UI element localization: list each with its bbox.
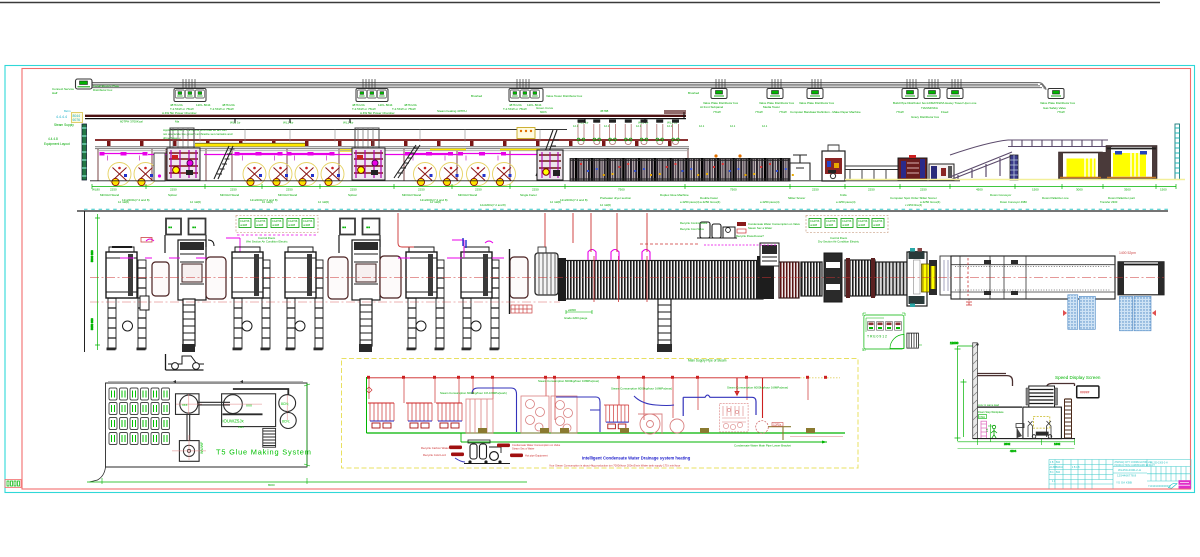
svg-text:Gravy Distributor box: Gravy Distributor box: [911, 115, 940, 119]
svg-text:2250: 2250: [230, 188, 237, 192]
svg-text:12.1: 12.1: [762, 124, 768, 128]
svg-text:77kW: 77kW: [779, 110, 787, 114]
svg-text:Steam Consumption 6000kg/hour: Steam Consumption 6000kg/hour 0.8-0.6MPa…: [440, 391, 507, 395]
svg-text:2250: 2250: [475, 188, 482, 192]
svg-text:8CN;: 8CN;: [282, 420, 290, 424]
svg-text:4204: 4204: [1010, 449, 1017, 453]
svg-text:Steam Sec a Water: Steam Sec a Water: [748, 226, 772, 230]
svg-text:77kW: 77kW: [755, 110, 763, 114]
svg-text:1254466778.8: 1254466778.8: [1117, 474, 1137, 478]
svg-text:77kW: 77kW: [713, 110, 721, 114]
svg-text:ZHANGQ CITY CORRUGATOR LIN: ZHANGQ CITY CORRUGATOR LIN: [1115, 461, 1152, 464]
svg-text:Condensate Water Consumption o: Condensate Water Consumption on Valve: [512, 443, 561, 447]
svg-text:4 B 4 B: 4 B 4 B: [1072, 467, 1080, 469]
svg-text:Recycle Carbon Water: Recycle Carbon Water: [421, 446, 449, 450]
svg-text:WL1 1tr: WL1 1tr: [343, 121, 354, 125]
svg-text:Steam Sec a Water: Steam Sec a Water: [512, 447, 535, 451]
svg-text:#####: #####: [1080, 391, 1090, 395]
svg-text:7101010000000017: 7101010000000017: [1148, 484, 1172, 488]
svg-text:60t/h: 60t/h: [540, 110, 547, 114]
svg-text:Knife: Knife: [840, 193, 847, 197]
svg-text:Splicer: Splicer: [348, 193, 357, 197]
svg-text:Recycle Cold Lord: Recycle Cold Lord: [423, 453, 446, 457]
svg-text:A 4W 5kr Power Chamber: A 4W 5kr Power Chamber: [162, 111, 197, 115]
svg-text:2250: 2250: [350, 188, 357, 192]
svg-text:YS GA KBB: YS GA KBB: [1116, 481, 1132, 485]
svg-text:Valve Tower Distributor box: Valve Tower Distributor box: [546, 94, 583, 98]
svg-text:Recycle Cost Valve: Recycle Cost Valve: [680, 227, 704, 231]
svg-text:12.1: 12.1: [730, 124, 736, 128]
svg-text:4500: 4500: [976, 188, 983, 192]
svg-text:12.1: 12.1: [699, 124, 705, 128]
svg-text:Steam heating 40TPH: Steam heating 40TPH: [437, 109, 467, 113]
svg-text:12000: 12000: [950, 341, 959, 345]
svg-text:Steam Consumption 6000kg/hour: Steam Consumption 6000kg/hour 0.8MPa(max…: [538, 379, 599, 383]
svg-text:4.4.4.4: 4.4.4.4: [56, 115, 67, 119]
svg-text:12.1: 12.1: [667, 124, 673, 128]
svg-text:8000: 8000: [268, 483, 275, 487]
svg-text:77kW: 77kW: [1057, 110, 1065, 114]
svg-text:xxx: xxx: [246, 403, 252, 408]
svg-text:5600 300: 5600 300: [90, 250, 94, 262]
svg-text:2250: 2250: [110, 188, 117, 192]
svg-text:Speed Display Screen: Speed Display Screen: [1055, 375, 1101, 380]
svg-text:12.1: 12.1: [636, 124, 642, 128]
svg-text:3500: 3500: [1124, 188, 1131, 192]
svg-text:Single Facer: Single Facer: [520, 193, 537, 197]
svg-text:60TPH 3700Kcal: 60TPH 3700Kcal: [120, 120, 143, 124]
svg-text:B44: B44: [1056, 462, 1061, 464]
svg-text:45788: 45788: [600, 109, 609, 113]
svg-text:Down Conveyor 4980: Down Conveyor 4980: [1000, 200, 1027, 204]
svg-text:2250: 2250: [812, 188, 819, 192]
svg-text:TIANSFNKA: TIANSFNKA: [921, 106, 938, 110]
svg-text:iOUWZ5Jx: iOUWZ5Jx: [223, 419, 245, 424]
svg-text:Grade 2200 gauge: Grade 2200 gauge: [564, 316, 588, 320]
svg-text:2250: 2250: [418, 188, 425, 192]
svg-text:Main Supply Pipe of Steam: Main Supply Pipe of Steam: [688, 359, 727, 363]
svg-text:Build Pipe Distributor box: Build Pipe Distributor box: [893, 101, 927, 105]
svg-text:WWWF: WWWF: [200, 441, 204, 454]
svg-text:12 roll(6): 12 roll(6): [550, 200, 561, 204]
svg-text:Duplex Glue Machine: Duplex Glue Machine: [660, 193, 689, 197]
svg-text:12 roll(6): 12 roll(6): [430, 200, 441, 204]
svg-text:12.1: 12.1: [604, 124, 610, 128]
svg-text:T-2.5KW or 75kW: T-2.5KW or 75kW: [210, 107, 234, 111]
svg-text:Your Steam Consumption is abou: Your Steam Consumption is about 4kg prod…: [549, 464, 680, 468]
svg-text:1602: 1602: [1054, 442, 1061, 446]
svg-text:a 4250 piece(4): a 4250 piece(4): [836, 200, 856, 204]
svg-text:7500: 7500: [730, 188, 737, 192]
svg-text:2250: 2250: [170, 188, 177, 192]
svg-text:Wet Section Air Condition Elec: Wet Section Air Condition Electric: [246, 240, 288, 244]
svg-text:x 2250 litre(4): x 2250 litre(4): [905, 203, 922, 207]
svg-text:Recycle Control Valve: Recycle Control Valve: [680, 221, 708, 225]
svg-text:Down Conveyor: Down Conveyor: [990, 193, 1011, 197]
svg-text:Ma: Ma: [175, 120, 179, 124]
svg-text:2250: 2250: [868, 188, 875, 192]
svg-text:Intelligent Condensate Water D: Intelligent Condensate Water Drainage sy…: [582, 456, 691, 461]
svg-text:1500: 1500: [1032, 188, 1039, 192]
svg-text:2250: 2250: [286, 188, 293, 192]
svg-text:Dry Section Air Condition Elec: Dry Section Air Condition Electric: [818, 240, 860, 244]
svg-text:Steam Consumption 6000kg/hour: Steam Consumption 6000kg/hour 0.8MPa(max…: [727, 386, 788, 390]
svg-text:2250: 2250: [920, 188, 927, 192]
svg-text:xWx: xWx: [238, 425, 244, 429]
svg-text:Mill Roll Stand: Mill Roll Stand: [458, 193, 478, 197]
svg-text:■■: ■■: [192, 226, 196, 230]
svg-text:⌀1800: ⌀1800: [568, 308, 576, 312]
svg-text:5050 600: 5050 600: [90, 318, 94, 330]
svg-text:xxx: xxx: [182, 403, 188, 407]
svg-text:4.4.4.8: 4.4.4.8: [48, 137, 58, 141]
svg-text:Mill Roll Stand: Mill Roll Stand: [278, 193, 298, 197]
svg-text:Brushed: Brushed: [471, 94, 483, 98]
svg-text:Recycle Powerhouse?: Recycle Powerhouse?: [736, 234, 764, 238]
svg-text:12x2200x(7.2 and 8): 12x2200x(7.2 and 8): [480, 203, 506, 207]
svg-text:12x2200x(7.2 and 8): 12x2200x(7.2 and 8): [560, 198, 588, 202]
svg-text:T-2.5KW or 75kW: T-2.5KW or 75kW: [392, 107, 416, 111]
svg-text:Fixed: Fixed: [941, 110, 949, 114]
svg-text:■■: ■■: [366, 226, 370, 230]
svg-text:Condensate Water Main Pipe Low: Condensate Water Main Pipe Lower Bracket: [734, 444, 791, 448]
svg-text:Transfer 2300: Transfer 2300: [1100, 200, 1118, 204]
svg-text:2602: 2602: [1004, 442, 1011, 446]
svg-text:Hot pipe Equipment: Hot pipe Equipment: [525, 454, 548, 458]
svg-text:T5 Glue Making System: T5 Glue Making System: [216, 448, 312, 457]
svg-text:a 4250 piece(4): a 4250 piece(4): [680, 200, 700, 204]
svg-text:8CN;: 8CN;: [281, 402, 289, 406]
svg-text:8stm: 8stm: [64, 109, 71, 113]
svg-text:WL80: WL80: [92, 188, 100, 192]
svg-text:WL1 1tr: WL1 1tr: [230, 121, 241, 125]
svg-text:WL250-2300-2-H: WL250-2300-2-H: [1150, 463, 1168, 465]
svg-text:At front Subpanel: At front Subpanel: [700, 105, 724, 109]
svg-text:4 B: 4 B: [1050, 462, 1054, 464]
svg-text:T-2.5KW or 75kW: T-2.5KW or 75kW: [503, 107, 527, 111]
svg-text:Mill Roll Stand: Mill Roll Stand: [100, 193, 120, 197]
svg-text:Valve Plate Distributor box: Valve Plate Distributor box: [799, 101, 835, 105]
svg-text:1500: 1500: [1160, 188, 1167, 192]
svg-text:Distributor box: Distributor box: [93, 88, 113, 92]
svg-text:A 4W 5kr Power Chamber: A 4W 5kr Power Chamber: [360, 111, 395, 115]
svg-text:Steam Supply: Steam Supply: [54, 123, 74, 127]
svg-text:12 roll(6): 12 roll(6): [262, 200, 273, 204]
svg-text:Media Tower: Media Tower: [763, 105, 780, 109]
svg-text:Mill Roll Stand: Mill Roll Stand: [220, 193, 240, 197]
svg-text:WL1 1tr: WL1 1tr: [283, 121, 294, 125]
svg-text:12 roll(6): 12 roll(6): [190, 200, 201, 204]
svg-text:7500: 7500: [618, 188, 625, 192]
svg-text:COPDs: COPDs: [773, 424, 782, 427]
svg-text:2250: 2250: [532, 188, 539, 192]
svg-text:1400 52pm: 1400 52pm: [1119, 251, 1136, 255]
svg-text:12 roll(6): 12 roll(6): [600, 203, 611, 207]
svg-text:Slitter Scorer: Slitter Scorer: [788, 196, 805, 200]
svg-text:WL250-2300-2-H: WL250-2300-2-H: [1118, 468, 1141, 472]
svg-text:Down Step Workplace: Down Step Workplace: [978, 410, 1004, 414]
svg-text:12 roll(6): 12 roll(6): [118, 200, 129, 204]
svg-text:12KL 8044: 12KL 8044: [378, 103, 393, 107]
svg-text:Computer Bandsaw Definition -: Computer Bandsaw Definition - Make Paper…: [790, 110, 861, 114]
svg-text:■■: ■■: [168, 226, 172, 230]
svg-text:12.1: 12.1: [573, 124, 579, 128]
svg-text:T R E 0 9 1 2: T R E 0 9 1 2: [867, 335, 887, 339]
svg-text:3000: 3000: [1076, 188, 1083, 192]
svg-text:LDMATFWIA Heavy Travel Upon on: LDMATFWIA Heavy Travel Upon one: [927, 101, 977, 105]
svg-text:Splicer: Splicer: [168, 193, 177, 197]
svg-text:■■: ■■: [342, 226, 346, 230]
svg-text:6076: 6076: [73, 118, 81, 122]
svg-text:Half: Half: [52, 91, 58, 95]
svg-text:77kW: 77kW: [896, 110, 904, 114]
svg-text:a 4250 Grou(4): a 4250 Grou(4): [920, 200, 940, 204]
svg-text:B44: B44: [1056, 472, 1061, 474]
svg-text:conv in same lead: conv in same lead: [978, 403, 999, 407]
svg-text:Brushed: Brushed: [688, 91, 700, 95]
svg-text:B4344: B4344: [1056, 467, 1063, 469]
svg-text:FMA: FMA: [980, 415, 986, 419]
svg-text:12KL 8044: 12KL 8044: [196, 103, 211, 107]
svg-text:Down Palletizer one: Down Palletizer one: [1042, 196, 1069, 200]
svg-text:Valve Plate Distributor box: Valve Plate Distributor box: [1040, 101, 1076, 105]
svg-text:12 roll(6): 12 roll(6): [318, 200, 329, 204]
svg-text:a 4250 piece(4): a 4250 piece(4): [760, 200, 780, 204]
svg-text:Equipment Layout: Equipment Layout: [44, 142, 70, 146]
svg-text:Preheater dryer section: Preheater dryer section: [600, 196, 632, 200]
svg-text:a 4250 Grou(4): a 4250 Grou(4): [700, 200, 720, 204]
svg-text:Mill Roll Stand: Mill Roll Stand: [402, 193, 422, 197]
svg-text:Steam Consumption 6000kg/hour: Steam Consumption 6000kg/hour 0.8MPa(max…: [611, 387, 672, 391]
